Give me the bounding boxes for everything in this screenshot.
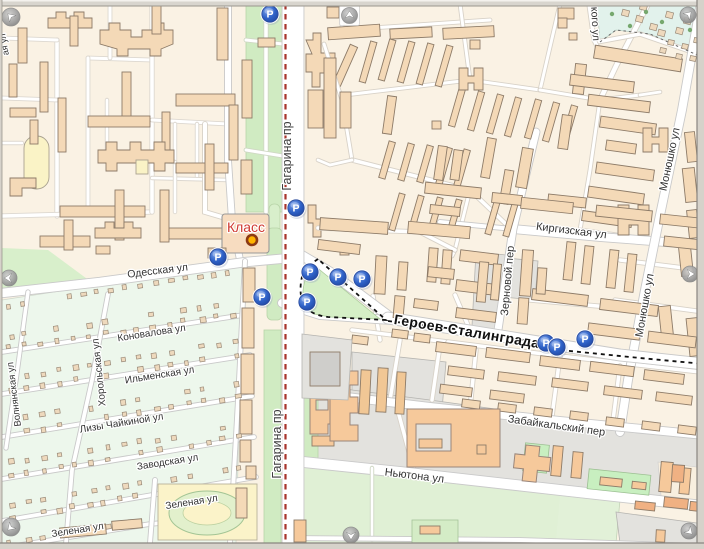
svg-text:P: P xyxy=(306,267,313,279)
svg-text:P: P xyxy=(266,9,273,21)
svg-text:P: P xyxy=(303,297,310,309)
svg-text:P: P xyxy=(258,292,265,304)
svg-text:Класс: Класс xyxy=(227,219,265,235)
svg-text:Гагарина пр: Гагарина пр xyxy=(270,409,284,478)
svg-text:P: P xyxy=(581,334,588,346)
svg-text:P: P xyxy=(358,274,365,286)
svg-text:кого ул: кого ул xyxy=(588,7,602,42)
svg-text:P: P xyxy=(553,342,560,354)
svg-text:Гагарина пр: Гагарина пр xyxy=(280,121,294,190)
svg-text:P: P xyxy=(214,252,221,264)
svg-text:P: P xyxy=(334,272,341,284)
svg-text:P: P xyxy=(292,203,299,215)
